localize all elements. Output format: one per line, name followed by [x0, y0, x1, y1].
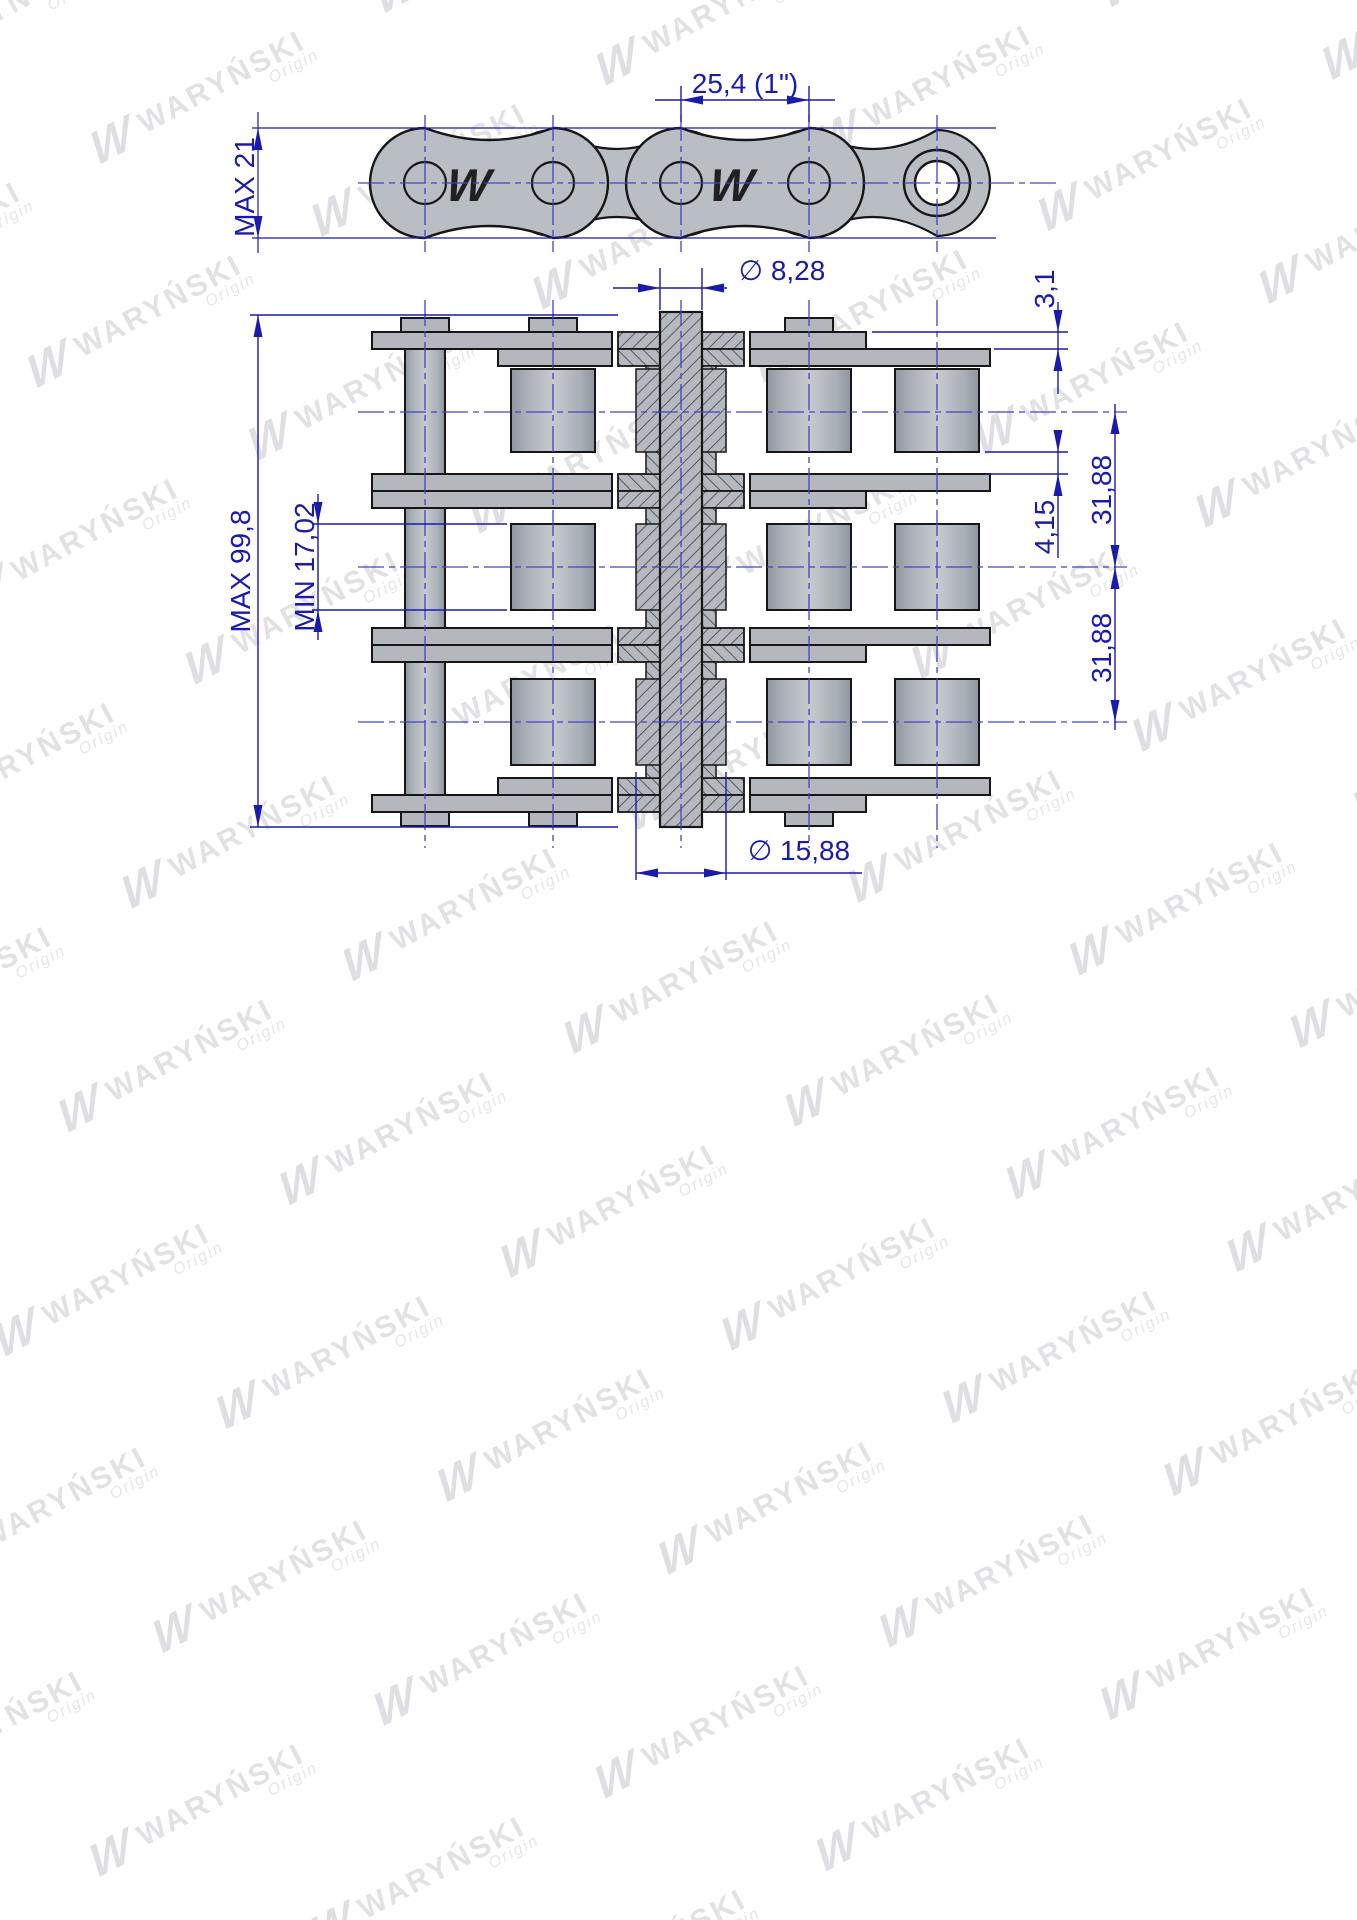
watermark-tile: WWARYŃSKIOrigin	[274, 1066, 500, 1206]
watermark-logo-w: W	[277, 1155, 325, 1207]
watermark-tile: WWARYŃSKIOrigin	[1095, 1581, 1321, 1721]
watermark-logo-w: W	[1004, 1149, 1052, 1201]
plate-thickness-label: 3,1	[1029, 270, 1060, 309]
watermark-tile: WWARYŃSKIOrigin	[84, 1738, 310, 1878]
watermark-tile: WWARYŃSKIOrigin	[432, 1363, 658, 1503]
watermark-logo-w: W	[877, 1597, 925, 1649]
watermark-logo-w: W	[0, 1306, 42, 1358]
overall-width-label: MAX 99,8	[225, 510, 256, 633]
watermark-logo-w: W	[940, 1373, 988, 1425]
watermark-tile: WWARYŃSKIOrigin	[0, 1665, 89, 1805]
watermark-logo-w: W	[214, 1379, 262, 1431]
watermark-brand: WARYŃSKI	[1269, 1133, 1357, 1249]
watermark-tile: WWARYŃSKIOrigin	[1000, 1061, 1226, 1201]
watermark-logo-w: W	[1161, 1446, 1209, 1498]
watermark-tile: WWARYŃSKIOrigin	[147, 1514, 373, 1654]
watermark-tile: WWARYŃSKIOrigin	[716, 1212, 942, 1352]
watermark-tile: WWARYŃSKIOrigin	[369, 1587, 595, 1727]
watermark-logo-w: W	[719, 1300, 767, 1352]
section-centerlines	[358, 300, 1127, 848]
dimension-strand-spacing-lower: 31,88	[1086, 567, 1120, 730]
watermark-logo-w: W	[88, 1827, 136, 1879]
watermark-logo-w: W	[1225, 1222, 1273, 1274]
section-view: ∅ 8,28 3,1 4,15	[225, 255, 1127, 880]
inner-width-label: MIN 17,02	[289, 502, 320, 631]
watermark-origin: Origin	[0, 1160, 9, 1212]
dimension-pitch: 25,4 (1")	[655, 68, 835, 122]
watermark-tile: WWARYŃSKIOrigin	[526, 1884, 752, 1920]
watermark-tile: WWARYŃSKIOrigin	[811, 1732, 1037, 1872]
watermark-brand: WARYŃSKI	[0, 1664, 89, 1780]
pitch-label: 25,4 (1")	[692, 68, 798, 99]
watermark-logo-w: W	[783, 1077, 831, 1129]
height-label: MAX 21	[229, 137, 260, 237]
watermark-logo-w: W	[498, 1228, 546, 1280]
watermark-tile: WWARYŃSKIOrigin	[937, 1285, 1163, 1425]
dimension-plate-offset: 4,15	[985, 430, 1068, 558]
pin-diameter-label: ∅ 8,28	[739, 255, 826, 286]
watermark-tile: WWARYŃSKIOrigin	[495, 1139, 721, 1279]
watermark-logo-w: W	[151, 1603, 199, 1655]
strand-spacing-lower-label: 31,88	[1086, 613, 1117, 683]
side-view: W W 25,4 (1")	[229, 68, 1058, 253]
strand-spacing-upper-label: 31,88	[1086, 455, 1117, 525]
watermark-tile: WWARYŃSKIOrigin	[779, 988, 1005, 1128]
watermark-tile: WWARYŃSKIOrigin	[874, 1509, 1100, 1649]
watermark-brand: WARYŃSKI	[1206, 1356, 1357, 1472]
watermark-tile: WWARYŃSKIOrigin	[211, 1290, 437, 1430]
chain-technical-drawing: W W 25,4 (1")	[0, 0, 1357, 960]
watermark-logo-w: W	[593, 1748, 641, 1800]
page: { "watermark": { "logo_glyph": "W", "bra…	[0, 0, 1357, 960]
watermark-logo-w: W	[372, 1676, 420, 1728]
watermark-logo-w: W	[814, 1821, 862, 1873]
watermark-tile: WWARYŃSKIOrigin	[653, 1436, 879, 1576]
watermark-logo-w: W	[309, 1899, 357, 1920]
watermark-logo-w: W	[562, 1004, 610, 1056]
watermark-logo-w: W	[656, 1524, 704, 1576]
watermark-tile: WWARYŃSKIOrigin	[0, 1441, 152, 1581]
watermark-tile: WWARYŃSKIOrigin	[1221, 1133, 1357, 1273]
watermark-logo-w: W	[435, 1452, 483, 1504]
watermark-tile: WWARYŃSKIOrigin	[590, 1660, 816, 1800]
watermark-logo-w: W	[56, 1082, 104, 1134]
watermark-logo-w: W	[1288, 998, 1336, 1050]
watermark-tile: WWARYŃSKIOrigin	[1158, 1357, 1357, 1497]
dimension-strand-spacing-upper: 31,88	[1086, 404, 1120, 567]
watermark-logo-w: W	[1098, 1670, 1146, 1722]
plate-offset-label: 4,15	[1029, 500, 1060, 555]
watermark-tile: WWARYŃSKIOrigin	[305, 1811, 531, 1920]
watermark-tile: WWARYŃSKIOrigin	[53, 994, 279, 1134]
roller-diameter-label: ∅ 15,88	[748, 835, 850, 866]
dimension-pin-diameter: ∅ 8,28	[613, 255, 825, 310]
watermark-tile: WWARYŃSKIOrigin	[0, 1218, 215, 1358]
